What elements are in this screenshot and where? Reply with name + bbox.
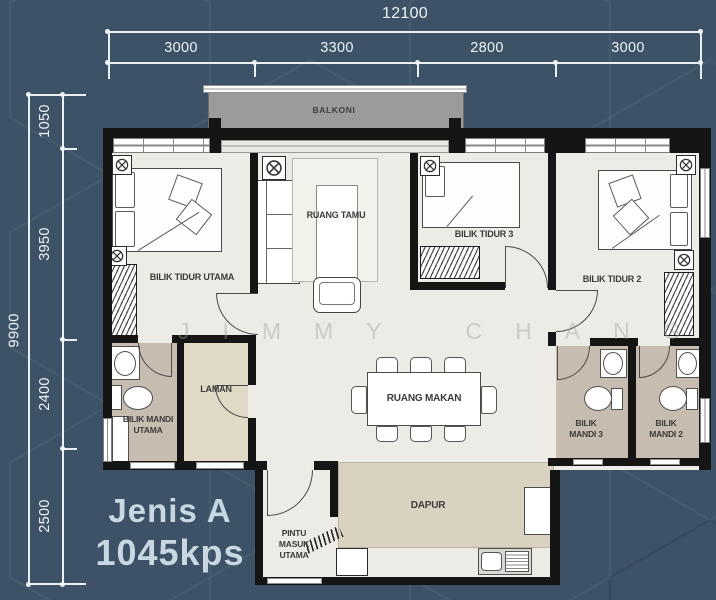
coffee-table — [316, 185, 358, 281]
dining-chair — [410, 426, 432, 442]
armchair — [313, 277, 361, 313]
label-pintu-masuk-utama: PINTU MASUK UTAMA — [266, 528, 322, 561]
label-bilik-tidur-utama: BILIK TIDUR UTAMA — [147, 272, 237, 283]
sink-icon — [603, 352, 623, 375]
label-bilik-tidur-3: BILIK TIDUR 3 — [434, 229, 534, 240]
dim-top-seg-2: 3300 — [297, 40, 377, 56]
window-bilik-tidur-utama — [113, 138, 210, 153]
unit-type-label: Jenis A — [70, 492, 270, 530]
window-bathroom2-sill — [650, 459, 680, 465]
window-laman-sill — [196, 462, 244, 469]
window-bilik-tidur-3 — [465, 138, 545, 153]
wardrobe — [664, 272, 694, 336]
pillow — [670, 174, 688, 208]
sink-basin — [481, 552, 502, 571]
toilet-tank — [111, 385, 122, 410]
pillow — [115, 211, 135, 247]
wardrobe — [110, 264, 137, 336]
dining-chair — [444, 426, 466, 442]
pillow — [115, 172, 135, 208]
wardrobe — [420, 246, 480, 279]
kitchen-cabinet — [336, 548, 368, 576]
window-left-wall — [103, 418, 112, 462]
dim-left-seg-3: 2400 — [37, 354, 53, 434]
toilet-icon — [123, 386, 153, 410]
ceiling-fan-icon — [676, 155, 696, 175]
dim-top-total: 12100 — [345, 5, 465, 23]
dim-top-total-line — [108, 31, 702, 33]
label-balkoni: BALKONI — [234, 105, 434, 116]
label-ruang-makan: RUANG MAKAN — [369, 393, 479, 406]
floor-plan-image: 12100 3000 3300 2800 3000 9900 1050 3950… — [0, 0, 716, 600]
sink-drainboard — [505, 551, 529, 572]
dim-left-seg-2: 3950 — [37, 204, 53, 284]
ceiling-fan-icon — [674, 250, 694, 270]
toilet-icon — [659, 386, 687, 411]
toilet-tank — [611, 388, 623, 410]
balcony-railing — [203, 85, 467, 93]
toilet-icon — [584, 386, 612, 411]
sink-icon — [678, 352, 697, 375]
dim-left-total: 9900 — [6, 291, 23, 371]
stove — [524, 487, 553, 535]
dining-chair — [410, 357, 432, 373]
sink-icon — [114, 351, 136, 376]
label-bilik-mandi-utama: BILIK MANDI UTAMA — [118, 414, 178, 436]
dining-chair — [481, 386, 497, 414]
dim-left-total-line — [28, 95, 30, 585]
unit-area-label: 1045kps — [60, 532, 280, 574]
label-laman: LAMAN — [181, 384, 251, 395]
entrance-threshold — [267, 578, 322, 584]
ceiling-fan-icon — [112, 155, 132, 175]
dining-chair — [376, 426, 398, 442]
dining-chair — [351, 386, 367, 414]
pillow — [670, 212, 688, 246]
dim-left-seg-1: 1050 — [37, 81, 53, 161]
ceiling-fan-icon — [420, 156, 440, 176]
label-dapur: DAPUR — [378, 500, 478, 513]
dim-top-segment-line — [108, 62, 702, 64]
dim-top-seg-3: 2800 — [447, 40, 527, 56]
label-ruang-tamu: RUANG TAMU — [296, 210, 376, 221]
window-bathroom-utama-sill — [130, 462, 175, 469]
sliding-door-balcony — [221, 140, 449, 153]
dim-top-seg-1: 3000 — [141, 40, 221, 56]
dim-left-seg-4: 2500 — [37, 476, 53, 556]
label-bilik-mandi-3: BILIK MANDI 3 — [566, 418, 606, 440]
window-right-wall-bedroom2 — [700, 168, 710, 238]
dining-chair — [376, 357, 398, 373]
window-bilik-tidur-2 — [585, 138, 670, 153]
window-right-wall-bathroom2 — [700, 398, 710, 443]
label-bilik-mandi-2: BILIK MANDI 2 — [646, 418, 686, 440]
label-bilik-tidur-2: BILIK TIDUR 2 — [562, 274, 662, 285]
ceiling-fan-icon — [262, 156, 286, 180]
window-bathroom3-sill — [573, 459, 603, 465]
dining-chair — [444, 357, 466, 373]
toilet-tank — [686, 388, 698, 410]
dim-top-seg-4: 3000 — [588, 40, 668, 56]
